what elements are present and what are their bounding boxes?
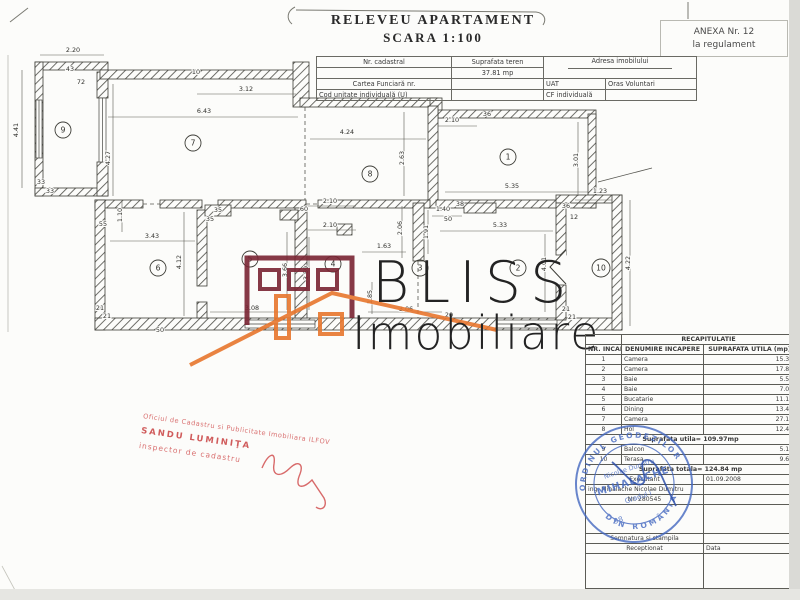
dimension-label: 20: [445, 311, 453, 319]
recap-cell: [704, 554, 796, 589]
dimension-label: 4.27: [104, 151, 112, 165]
walls: [35, 62, 622, 330]
recap-cell: Camera: [622, 355, 704, 365]
dimension-label: 21: [562, 305, 570, 313]
dimension-label: 3.43: [145, 232, 159, 240]
recap-cell: Baie: [622, 385, 704, 395]
dimension-label: 4.41: [12, 123, 20, 137]
suprafata-teren-value: 37.81 mp: [452, 68, 544, 79]
dimension-label: 50: [444, 215, 452, 223]
room-number: 4: [331, 260, 336, 269]
dimension-label: 1.63: [377, 242, 391, 250]
recap-col3-header: SUPRAFATA UTILA (mp): [704, 345, 796, 355]
dimension-label: 1.91: [422, 225, 430, 239]
recap-cell: 15.35: [704, 355, 796, 365]
dimension-label: 35: [214, 206, 222, 214]
dimension-label: 1.10: [116, 208, 124, 222]
room-number: 7: [191, 139, 196, 148]
dimension-label: 3.12: [239, 85, 253, 93]
recap-cell: 9: [586, 445, 622, 455]
recap-cell: 13.48: [704, 405, 796, 415]
dimension-label: 4.12: [175, 255, 183, 269]
dimension-label: 4.01: [540, 257, 548, 271]
recap-cell: Hol: [622, 425, 704, 435]
dimension-label: 1.23: [593, 187, 607, 195]
recap-title: RECAPITULATIE: [622, 335, 796, 345]
recap-cell: Dining: [622, 405, 704, 415]
dimension-label: 4.24: [340, 128, 354, 136]
dimension-label: 33: [46, 187, 54, 195]
dimension-label: 50: [156, 326, 164, 334]
dimension-label: 43: [66, 65, 74, 73]
recap-cell: 6: [586, 405, 622, 415]
room-number: 8: [368, 170, 373, 179]
nr-cadastral-value: [317, 68, 452, 79]
recap-cell: 01.09.2008: [704, 475, 796, 485]
dimension-label: 10: [192, 68, 200, 76]
recap-cell: Semnatura si stampila: [586, 534, 704, 544]
dimension-label: 4.22: [624, 256, 632, 270]
cf-individuala-value: [606, 90, 697, 101]
recap-title-spacer: [586, 335, 622, 345]
dimension-label: 3.08: [245, 304, 259, 312]
recap-cell: Bucatarie: [622, 395, 704, 405]
scan-edge-right: [789, 0, 800, 600]
room-number: 3: [418, 264, 423, 273]
dimension-label: 5.35: [505, 182, 519, 190]
dimension-label: 2.63: [398, 151, 406, 165]
scan-edge-bottom: [0, 589, 800, 600]
room-number: 2: [516, 264, 521, 273]
document-scale: SCARA 1:100: [318, 30, 548, 46]
recap-cell: Baie: [622, 375, 704, 385]
document-title: RELEVEU APARTAMENT: [318, 13, 548, 29]
dimension-label: 2.10: [445, 116, 459, 124]
scanned-floorplan-document: 97812106543 2.204.414372103.126.434.2733…: [0, 0, 800, 600]
dimension-label: 36: [483, 110, 491, 118]
room-number: 9: [61, 126, 66, 135]
adresa-label: Adresa imobilului: [592, 57, 649, 65]
recap-cell: 1: [586, 355, 622, 365]
cod-unitate-value: [452, 90, 544, 101]
nr-cadastral-label: Nr. cadastral: [317, 57, 452, 68]
recap-cell: 9.68: [704, 455, 796, 465]
recap-cell: 3: [586, 375, 622, 385]
recap-col1-header: NR. INCAPERE: [586, 345, 622, 355]
recapitulation-table: RECAPITULATIE NR. INCAPERE DENUMIRE INCA…: [585, 334, 796, 600]
dimension-label: 72: [77, 78, 85, 86]
recap-cell: 5.19: [704, 445, 796, 455]
recap-cell: ing. Mihalache Nicolae Dumitru: [586, 485, 704, 495]
uat-value: Oras Voluntari: [606, 79, 697, 90]
cadastral-header-table: Nr. cadastral Suprafata teren Adresa imo…: [316, 56, 697, 101]
recap-cell: Terasa: [622, 455, 704, 465]
recap-cell: [586, 554, 704, 589]
recap-cell: 27.13: [704, 415, 796, 425]
cartea-funciara-value: [452, 79, 544, 90]
dimension-label: 3.01: [572, 153, 580, 167]
recap-cell: [704, 485, 796, 495]
dimension-label: 55: [99, 220, 107, 228]
dimension-label: 1.85: [366, 290, 374, 304]
recap-cell: 8: [586, 425, 622, 435]
recap-cell: 4: [586, 385, 622, 395]
uat-label: UAT: [544, 79, 606, 90]
anexa-line2: la regulament: [661, 39, 787, 52]
dimension-label: 2.10: [323, 221, 337, 229]
dimension-label: 33: [37, 178, 45, 186]
adresa-cell: Adresa imobilului: [544, 57, 697, 79]
room-number: 1: [506, 153, 511, 162]
dimension-label: 3.66: [281, 263, 289, 277]
recap-cell: Data: [704, 544, 796, 554]
recap-cell: Executant: [586, 475, 704, 485]
dimension-label: 21: [568, 313, 576, 321]
recap-cell: Camera: [622, 365, 704, 375]
dimension-label: 60: [300, 205, 308, 213]
recap-cell: Suprafata utila= 109.97mp: [586, 435, 796, 445]
recap-cell: Camera: [622, 415, 704, 425]
cod-unitate-label: Cod unitate individuală (U): [317, 90, 452, 101]
dimension-label: 21: [96, 304, 104, 312]
recap-cell: 2: [586, 365, 622, 375]
dimension-label: 2.20: [66, 46, 80, 54]
dimension-label: 21: [103, 312, 111, 320]
recap-cell: [704, 505, 796, 534]
recap-cell: [586, 505, 704, 534]
dimension-label: 38: [456, 200, 464, 208]
dimension-label: 2.10: [323, 197, 337, 205]
dimension-label: 12: [570, 213, 578, 221]
recap-cell: 5.57: [704, 375, 796, 385]
room-number: 5: [248, 255, 253, 264]
suprafata-teren-label: Suprafata teren: [452, 57, 544, 68]
anexa-box: ANEXA Nr. 12 la regulament: [660, 20, 788, 57]
recap-cell: Suprafata totala= 124.84 mp: [586, 465, 796, 475]
recap-cell: [704, 534, 796, 544]
anexa-line1: ANEXA Nr. 12: [661, 26, 787, 39]
recap-cell: 10: [586, 455, 622, 465]
recap-cell: Nr. 280545: [586, 495, 704, 505]
dimension-label: 1.40: [436, 205, 450, 213]
room-number: 10: [596, 264, 606, 273]
dimension-label: 3.06: [399, 305, 413, 313]
cf-individuala-label: CF individuală: [544, 90, 606, 101]
recap-cell: 7.08: [704, 385, 796, 395]
recap-col2-header: DENUMIRE INCAPERE: [622, 345, 704, 355]
recap-cell: Receptionat: [586, 544, 704, 554]
recap-cell: 5: [586, 395, 622, 405]
recap-cell: 7: [586, 415, 622, 425]
dimension-label: 6.43: [197, 107, 211, 115]
recap-cell: 17.80: [704, 365, 796, 375]
recap-cell: 11.15: [704, 395, 796, 405]
dimension-label: 5.33: [493, 221, 507, 229]
dimension-label: 36: [562, 202, 570, 210]
dimension-label: 35: [206, 215, 214, 223]
recap-body: 1Camera15.352Camera17.803Baie5.574Baie7.…: [586, 355, 796, 600]
recap-cell: [704, 495, 796, 505]
cartea-funciara-label: Cartea Funciară nr.: [317, 79, 452, 90]
recap-cell: Balcon: [622, 445, 704, 455]
dimension-label: 3.59: [302, 266, 310, 280]
recap-cell: 12.41: [704, 425, 796, 435]
dimension-label: 2.06: [396, 221, 404, 235]
title-block: RELEVEU APARTAMENT SCARA 1:100: [318, 13, 548, 46]
room-number: 6: [156, 264, 161, 273]
